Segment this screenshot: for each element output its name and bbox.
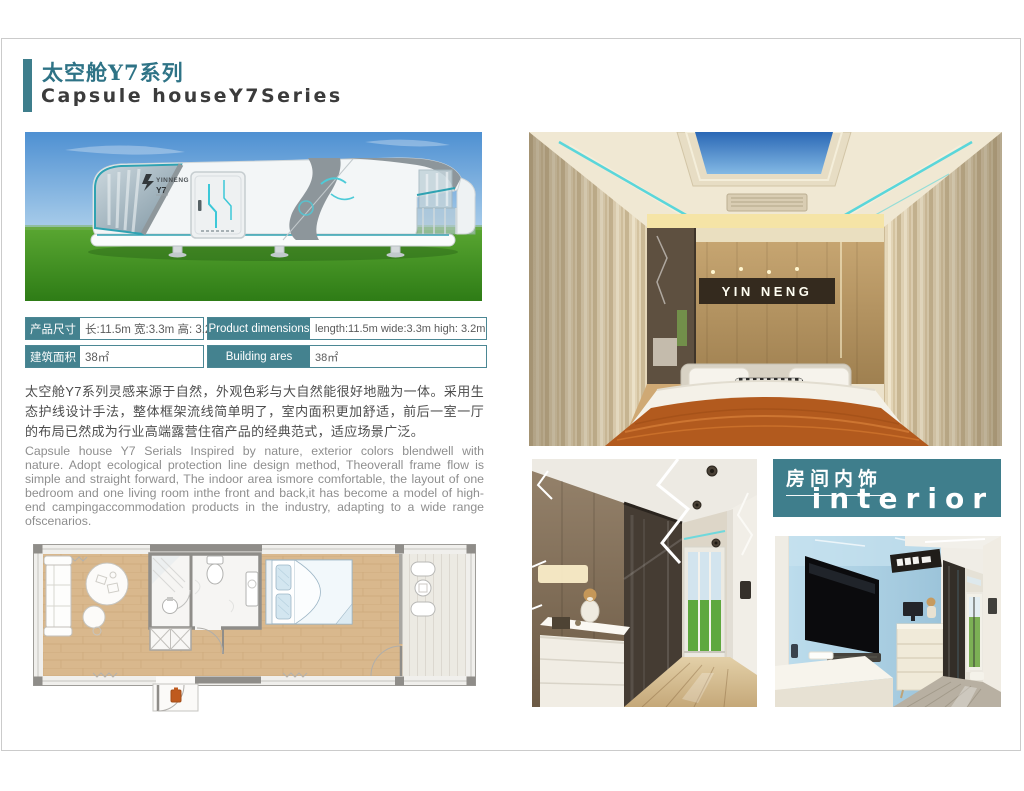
spec-table-english: Product dimensions length:11.5m wide:3.3… [207, 317, 487, 373]
spec-table-chinese: 产品尺寸 长:11.5m 宽:3.3m 高: 3.2m 建筑面积 38㎡ [25, 317, 204, 373]
page-title-english: Capsule houseY7Series [41, 85, 343, 107]
hallway-photo [532, 459, 757, 707]
vanity [246, 572, 258, 606]
wall-lamp [538, 565, 588, 583]
toilet [207, 564, 223, 584]
model-name: Y7 [156, 185, 167, 195]
floor-plan [33, 540, 480, 715]
interior-badge: 房间内饰 interior [773, 459, 1001, 517]
spec-label: 建筑面积 [26, 346, 80, 367]
brand-name: YINNENG [156, 177, 189, 184]
spec-value: 38㎡ [80, 346, 203, 367]
entry-door-front [153, 677, 198, 712]
spec-label: Building ares [208, 346, 310, 367]
cove-light [647, 214, 884, 228]
floor-mat [970, 672, 984, 680]
exterior-photo: YINNENG Y7 [25, 132, 482, 301]
description-chinese: 太空舱Y7系列灵感来源于自然，外观色彩与大自然能很好地融为一体。采用生态护线设计… [25, 382, 484, 442]
door-mat [171, 690, 181, 702]
page-title-chinese: 太空舱Y7系列 [42, 57, 184, 87]
spec-label: Product dimensions [208, 318, 310, 339]
title-accent-bar [23, 59, 32, 112]
dog-figurine [581, 589, 599, 623]
spec-label: 产品尺寸 [26, 318, 80, 339]
bed [266, 560, 352, 624]
table-row: Product dimensions length:11.5m wide:3.3… [207, 317, 487, 340]
decor-box [552, 617, 570, 629]
bedroom-photo: YIN NENG [529, 132, 1002, 446]
sofa [44, 556, 72, 636]
spec-value: 长:11.5m 宽:3.3m 高: 3.2m [80, 318, 221, 339]
skylight [695, 132, 833, 174]
desk-monitor [903, 602, 923, 616]
right-wall [983, 536, 1001, 707]
tv-room-photo [775, 536, 1001, 707]
table-row: Building ares 38㎡ [207, 345, 487, 368]
table-row: 建筑面积 38㎡ [25, 345, 204, 368]
porch-fixtures [411, 562, 435, 616]
brand-sign-text: YIN NENG [722, 284, 813, 299]
interior-badge-english: interior [812, 482, 994, 515]
description-english: Capsule house Y7 Serials Inspired by nat… [25, 444, 484, 528]
capsule-house: YINNENG Y7 [91, 158, 475, 258]
switch-panel [740, 581, 751, 599]
spec-value: 38㎡ [310, 346, 486, 367]
brochure-page: 太空舱Y7系列 Capsule houseY7Series [0, 0, 1024, 791]
spec-value: length:11.5m wide:3.3m high: 3.2m [310, 318, 486, 339]
table-row: 产品尺寸 长:11.5m 宽:3.3m 高: 3.2m [25, 317, 204, 340]
